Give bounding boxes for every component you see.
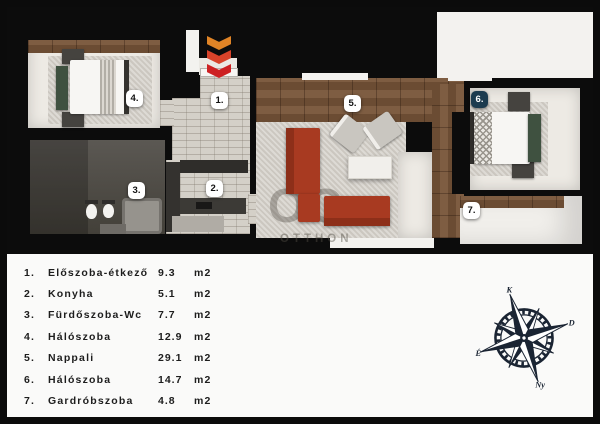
bath-mat: [100, 224, 126, 234]
legend-room-number: 5.: [24, 352, 48, 364]
legend-row: 7. Gardróbszoba 4.8 m2: [24, 390, 284, 411]
kitchen-counter-sink: [180, 198, 246, 214]
compass-rose-icon: K D Ny É: [470, 284, 578, 392]
room-label-5: 5.: [344, 95, 361, 112]
room-label-7: 7.: [463, 202, 480, 219]
compass-letter-west: Ny: [534, 380, 545, 389]
legend-room-name: Hálószoba: [48, 331, 158, 343]
room-label-3: 3.: [128, 182, 145, 199]
living-closet-zone: [398, 152, 432, 238]
legend-room-name: Nappali: [48, 352, 158, 364]
room-1-hallway: [172, 98, 250, 162]
compass-letter-east: K: [506, 286, 514, 295]
legend-row: 6. Hálószoba 14.7 m2: [24, 369, 284, 390]
compass-letter-north: É: [474, 348, 481, 358]
legend-room-area: 12.9: [158, 331, 194, 343]
legend-room-area: 4.8: [158, 395, 194, 407]
kitchen-sink: [196, 202, 212, 209]
legend-room-area: 14.7: [158, 374, 194, 386]
legend-room-name: Gardróbszoba: [48, 395, 158, 407]
window: [448, 74, 492, 81]
room-label-4: 4.: [126, 90, 143, 107]
legend-room-unit: m2: [194, 267, 222, 279]
legend-row: 3. Fürdőszoba-Wc 7.7 m2: [24, 305, 284, 326]
floor-plan: OC OTTHON 1. 2. 3. 4. 5. 6. 7.: [7, 7, 593, 254]
window: [302, 73, 368, 80]
legend-room-area: 9.3: [158, 267, 194, 279]
legend-room-name: Fürdőszoba-Wc: [48, 309, 158, 321]
nightstand: [62, 112, 84, 127]
legend-row: 5. Nappali 29.1 m2: [24, 348, 284, 369]
sofa-left-backrest: [286, 128, 294, 194]
sofa-left-chaise: [298, 194, 320, 222]
legend-room-unit: m2: [194, 352, 222, 364]
legend-room-number: 3.: [24, 309, 48, 321]
legend-row: 4. Hálószoba 12.9 m2: [24, 326, 284, 347]
legend-room-unit: m2: [194, 374, 222, 386]
kitchen-counter: [180, 160, 248, 173]
room-4-door-opening: [160, 100, 174, 126]
legend-row: 1. Előszoba-étkező 9.3 m2: [24, 262, 284, 283]
legend-room-unit: m2: [194, 288, 222, 300]
bed-throw: [474, 112, 492, 164]
bed-bench: [56, 66, 68, 110]
legend-row: 2. Konyha 5.1 m2: [24, 283, 284, 304]
legend-room-name: Hálószoba: [48, 374, 158, 386]
sofa-bottom-backrest: [324, 218, 390, 226]
compass-letter-south: D: [568, 319, 575, 328]
bed: [70, 60, 128, 114]
room-4-wood-floor: [28, 40, 160, 53]
kitchen-island: [172, 216, 224, 232]
legend-room-unit: m2: [194, 331, 222, 343]
legend-room-number: 4.: [24, 331, 48, 343]
room-legend: 1. Előszoba-étkező 9.3 m2 2. Konyha 5.1 …: [24, 262, 284, 412]
bidet: [103, 204, 114, 218]
legend-room-number: 1.: [24, 267, 48, 279]
bathroom-vanity-zone: [30, 140, 88, 234]
exterior-strip: [186, 30, 199, 72]
legend-room-area: 29.1: [158, 352, 194, 364]
legend-room-unit: m2: [194, 309, 222, 321]
legend-room-name: Konyha: [48, 288, 158, 300]
legend-room-number: 6.: [24, 374, 48, 386]
room-label-1: 1.: [211, 92, 228, 109]
bed-bench: [528, 114, 541, 162]
bathtub: [122, 198, 162, 234]
legend-room-number: 2.: [24, 288, 48, 300]
bed-throw: [100, 60, 116, 114]
watermark-text: OTTHON: [280, 233, 353, 245]
entrance-chevron-icon: [207, 36, 231, 50]
nightstand: [508, 92, 530, 111]
coffee-table: [348, 156, 392, 179]
room-label-2: 2.: [206, 180, 223, 197]
legend-room-name: Előszoba-étkező: [48, 267, 158, 279]
legend-room-area: 7.7: [158, 309, 194, 321]
room-label-6: 6.: [471, 91, 488, 108]
legend-room-number: 7.: [24, 395, 48, 407]
legend-room-unit: m2: [194, 395, 222, 407]
hall-wall: [452, 112, 464, 194]
floor-plan-screenshot: OC OTTHON 1. 2. 3. 4. 5. 6. 7. 1.: [0, 0, 600, 424]
toilet: [86, 204, 97, 219]
exterior-area: [437, 12, 593, 78]
legend-room-area: 5.1: [158, 288, 194, 300]
